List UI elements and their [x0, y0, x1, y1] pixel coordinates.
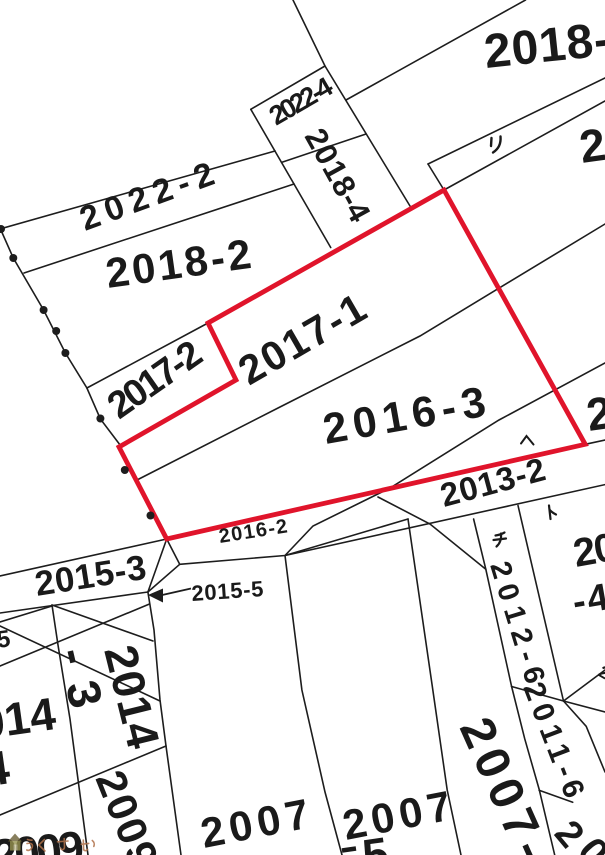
svg-text:2015-5: 2015-5: [191, 576, 265, 606]
svg-text:-4: -4: [569, 576, 605, 624]
